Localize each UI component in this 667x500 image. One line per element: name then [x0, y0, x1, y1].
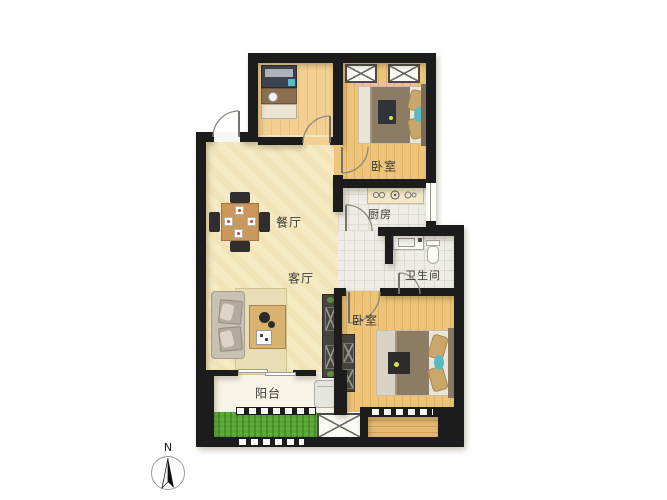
- compass-circle: [151, 456, 185, 490]
- labels-layer: 卧室 厨房 卫生间 餐厅 客厅 卧室 阳台: [0, 0, 667, 500]
- dining-label: 餐厅: [276, 214, 302, 231]
- compass-north-label: N: [146, 441, 190, 454]
- bedroom-top-label: 卧室: [371, 158, 397, 175]
- floor-plan: 卧室 厨房 卫生间 餐厅 客厅 卧室 阳台 N: [0, 0, 667, 500]
- balcony-label: 阳台: [255, 385, 281, 402]
- north-arrow-icon: [152, 457, 184, 489]
- kitchen-label: 厨房: [368, 206, 392, 222]
- compass: N: [146, 441, 190, 499]
- bedroom-bottom-label: 卧室: [352, 312, 378, 329]
- bathroom-label: 卫生间: [405, 267, 441, 283]
- living-label: 客厅: [288, 270, 314, 287]
